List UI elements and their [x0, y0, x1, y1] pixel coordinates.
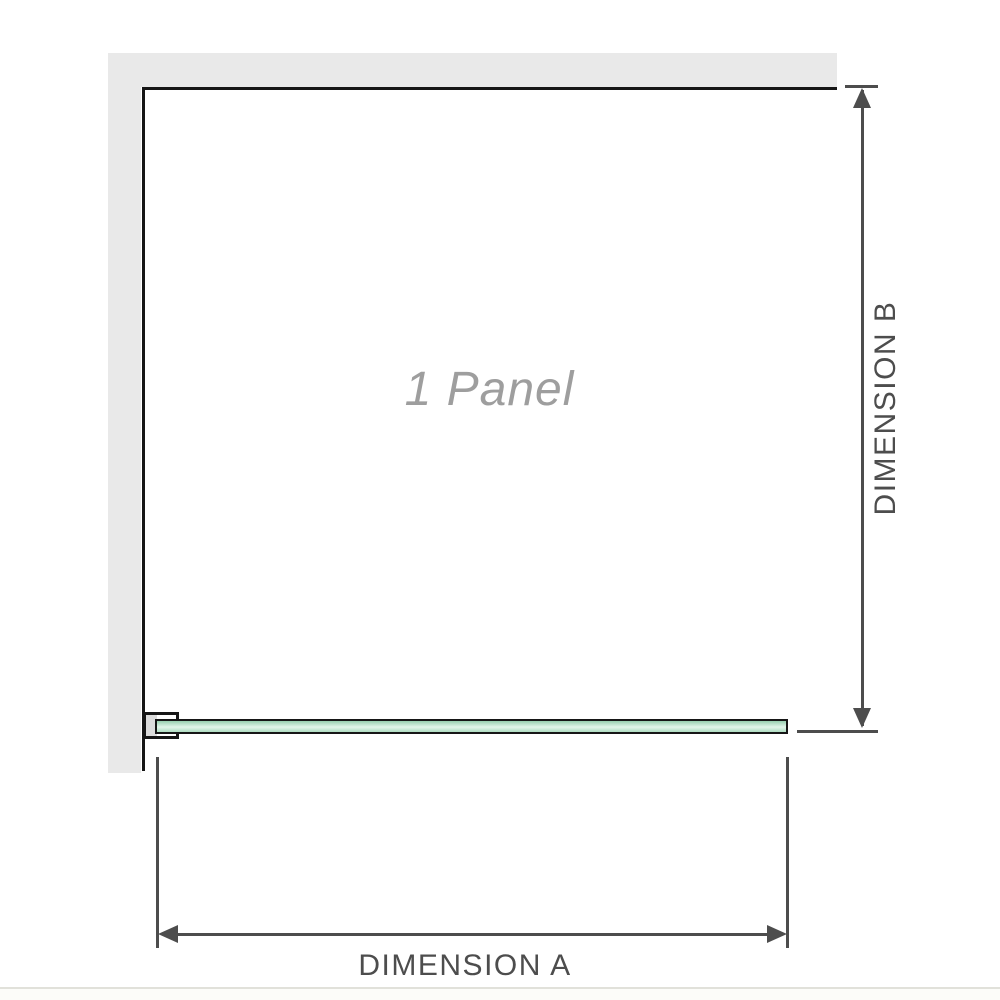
panel-outline-left — [142, 87, 145, 771]
arrow-up-icon — [853, 88, 871, 108]
wall-left — [108, 53, 141, 773]
dimension-a-extension-left — [156, 757, 159, 948]
panel-watermark: 1 Panel — [142, 362, 837, 417]
glass-panel — [155, 719, 788, 734]
page-bottom-edge — [0, 987, 1000, 1000]
panel-outline-top — [142, 87, 837, 90]
arrow-left-icon — [158, 925, 178, 943]
arrow-right-icon — [767, 925, 787, 943]
dimension-b-label: DIMENSION B — [871, 288, 901, 528]
dimension-a-label: DIMENSION A — [142, 948, 788, 984]
wall-top — [108, 53, 837, 87]
dimension-b-tick-bottom — [797, 730, 878, 733]
dimension-a-line — [172, 933, 773, 936]
dimension-b-line — [861, 90, 864, 726]
arrow-down-icon — [853, 708, 871, 728]
dimension-a-extension-right — [786, 757, 789, 948]
